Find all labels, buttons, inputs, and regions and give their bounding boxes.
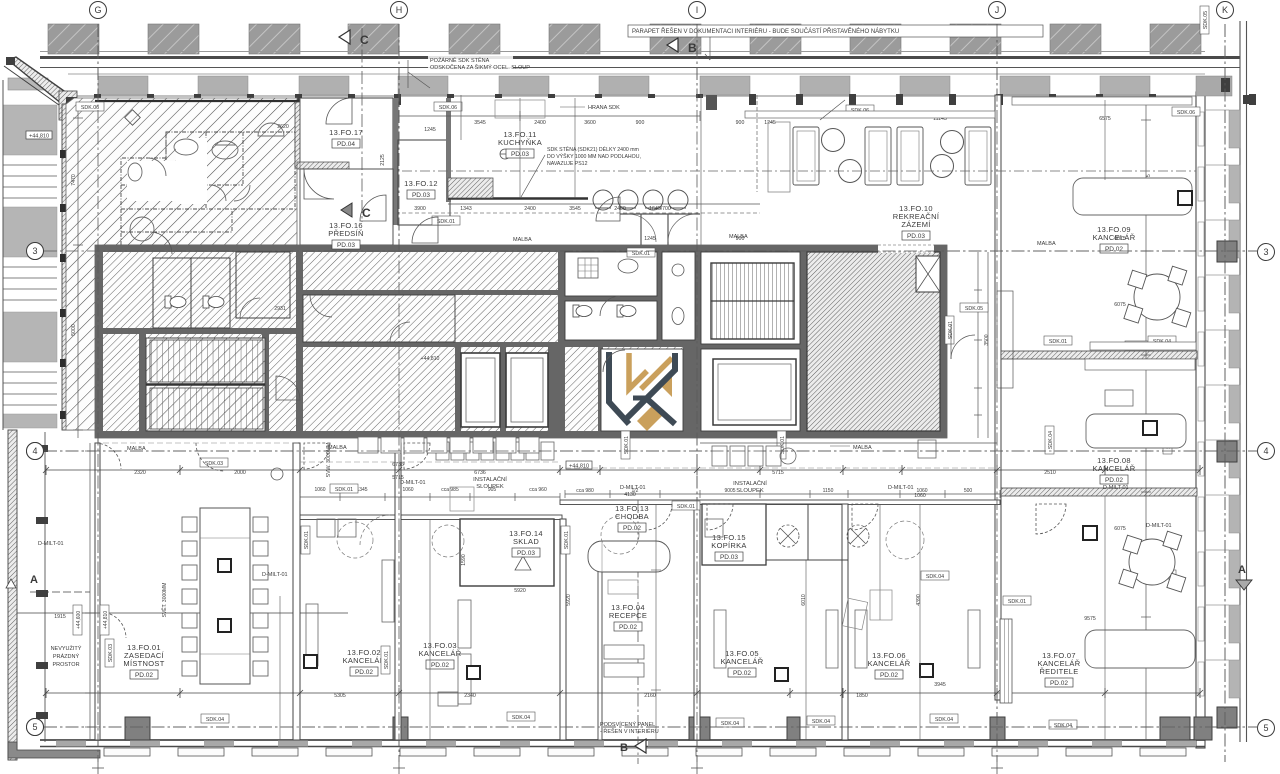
svg-text:CHODBA: CHODBA: [615, 512, 649, 521]
svg-text:PD.02: PD.02: [1105, 246, 1123, 253]
svg-text:MALBA: MALBA: [513, 237, 532, 243]
svg-text:HRANA SDK: HRANA SDK: [588, 105, 620, 111]
svg-text:PD.03: PD.03: [412, 192, 430, 199]
svg-text:PD.03: PD.03: [907, 233, 925, 240]
svg-text:+44,810: +44,810: [103, 611, 109, 629]
svg-text:KANCELÁŘ: KANCELÁŘ: [868, 659, 911, 668]
svg-text:1343: 1343: [460, 206, 472, 212]
svg-text:SVĚT. 3000MM: SVĚT. 3000MM: [160, 583, 168, 618]
svg-text:SDK.04: SDK.04: [512, 715, 530, 721]
svg-text:13.FO.12: 13.FO.12: [404, 179, 438, 188]
svg-text:6736: 6736: [474, 470, 486, 476]
svg-text:ŘEDITELE: ŘEDITELE: [1039, 667, 1078, 676]
svg-text:9575: 9575: [1084, 616, 1096, 622]
svg-text:PD.02: PD.02: [1050, 680, 1068, 687]
svg-text:1850: 1850: [856, 693, 868, 699]
svg-text:cca 960: cca 960: [529, 487, 547, 493]
svg-text:NEVYUŽITÝ: NEVYUŽITÝ: [51, 644, 82, 652]
svg-text:1915: 1915: [54, 614, 66, 620]
svg-text:PD.02: PD.02: [1105, 477, 1123, 484]
svg-text:ZÁZEMÍ: ZÁZEMÍ: [901, 220, 931, 229]
svg-text:5715: 5715: [392, 475, 404, 481]
svg-text:PŘEDSÍŇ: PŘEDSÍŇ: [328, 229, 363, 238]
svg-text:A: A: [30, 574, 38, 586]
svg-text:SDK.04: SDK.04: [721, 721, 739, 727]
svg-text:1060: 1060: [314, 487, 325, 493]
svg-text:4130: 4130: [624, 492, 636, 498]
svg-text:PROSTOR: PROSTOR: [52, 662, 79, 668]
svg-text:900: 900: [736, 120, 745, 126]
svg-text:K: K: [1222, 5, 1228, 15]
svg-text:2320: 2320: [134, 470, 146, 476]
svg-text:I: I: [696, 5, 699, 15]
svg-text:INSTALAČNÍ: INSTALAČNÍ: [733, 480, 767, 487]
svg-text:SDK.01: SDK.01: [335, 487, 353, 493]
svg-text:MALBA: MALBA: [1037, 241, 1056, 247]
svg-text:5920: 5920: [566, 594, 572, 606]
svg-text:KANCELÁŘ: KANCELÁŘ: [1093, 464, 1136, 473]
svg-text:PD.02: PD.02: [733, 670, 751, 677]
svg-text:SDK.06: SDK.06: [81, 105, 99, 111]
svg-text:PD.02: PD.02: [619, 624, 637, 631]
svg-text:D-MILT-01: D-MILT-01: [888, 485, 914, 491]
svg-text:KOPÍRKA: KOPÍRKA: [711, 541, 746, 550]
svg-text:1245: 1245: [644, 236, 656, 242]
svg-text:MÍSTNOST: MÍSTNOST: [123, 659, 164, 668]
svg-text:SDK.01: SDK.01: [304, 531, 310, 549]
svg-text:SDK.01: SDK.01: [1049, 339, 1067, 345]
svg-text:PD.02: PD.02: [135, 672, 153, 679]
svg-text:6075: 6075: [1114, 236, 1126, 242]
svg-text:PD.02: PD.02: [880, 672, 898, 679]
svg-text:RECEPCE: RECEPCE: [609, 611, 647, 620]
svg-text:PD.03: PD.03: [517, 550, 535, 557]
svg-text:MALBA: MALBA: [853, 445, 872, 451]
svg-text:KANCELÁŘ: KANCELÁŘ: [721, 657, 764, 666]
svg-text:5305: 5305: [334, 693, 346, 699]
svg-text:SDK.01: SDK.01: [677, 504, 695, 510]
svg-text:1590: 1590: [461, 554, 467, 566]
svg-text:B: B: [620, 742, 628, 754]
svg-text:PD.03: PD.03: [720, 554, 738, 561]
svg-text:7470: 7470: [71, 174, 77, 186]
svg-text:D-MILT-01: D-MILT-01: [38, 541, 64, 547]
svg-text:3: 3: [1263, 247, 1268, 257]
svg-text:+44,810: +44,810: [29, 134, 49, 140]
svg-text:+44,810: +44,810: [421, 356, 440, 362]
svg-text:KANCELÁŘ: KANCELÁŘ: [343, 656, 386, 665]
svg-text:- ŘEŠEN V INTERIÉRU: - ŘEŠEN V INTERIÉRU: [600, 727, 659, 735]
svg-text:900: 900: [636, 120, 645, 126]
svg-text:6736: 6736: [392, 462, 404, 468]
svg-text:cca 980: cca 980: [576, 488, 594, 494]
svg-text:H: H: [396, 5, 403, 15]
svg-text:2340: 2340: [464, 693, 476, 699]
svg-text:SDK.04: SDK.04: [926, 574, 944, 580]
svg-text:5: 5: [1263, 723, 1268, 733]
svg-text:6075: 6075: [1114, 302, 1126, 308]
svg-text:1060: 1060: [402, 487, 413, 493]
svg-text:SDK.01: SDK.01: [437, 219, 455, 225]
svg-text:3: 3: [32, 246, 37, 256]
svg-text:SDK.06: SDK.06: [1177, 110, 1195, 116]
svg-text:PD.02: PD.02: [431, 662, 449, 669]
svg-text:SVW. 3000MM: SVW. 3000MM: [326, 443, 332, 478]
svg-text:2620: 2620: [277, 124, 289, 130]
svg-text:PARAPET ŘEŠEN V DOKUMENTACI IN: PARAPET ŘEŠEN V DOKUMENTACI INTERIÉRU - …: [632, 27, 899, 35]
svg-text:PD.02: PD.02: [355, 669, 373, 676]
svg-text:POŽÁRNĚ SDK STĚNA: POŽÁRNĚ SDK STĚNA: [430, 56, 490, 64]
svg-text:3600: 3600: [584, 120, 596, 126]
svg-text:1150: 1150: [823, 488, 834, 494]
svg-text:PRÁZDNÝ: PRÁZDNÝ: [53, 653, 80, 660]
svg-text:6075: 6075: [1114, 526, 1126, 532]
svg-text:G: G: [94, 5, 101, 15]
svg-text:3545: 3545: [569, 206, 581, 212]
svg-text:5715: 5715: [772, 470, 784, 476]
svg-text:SDK.05: SDK.05: [1203, 11, 1209, 29]
svg-text:3945: 3945: [934, 682, 946, 688]
svg-text:D-MILT-01: D-MILT-01: [1103, 485, 1129, 491]
svg-text:13.FO.17: 13.FO.17: [329, 128, 363, 137]
svg-text:9005: 9005: [724, 488, 735, 494]
svg-text:SLOUPEK: SLOUPEK: [736, 488, 764, 494]
svg-text:500: 500: [964, 488, 973, 494]
svg-text:SDK STĚNA (SDK21) DÉLKY 2400 m: SDK STĚNA (SDK21) DÉLKY 2400 mm: [547, 145, 639, 153]
svg-text:2931: 2931: [274, 306, 286, 312]
svg-text:SDK.01: SDK.01: [564, 531, 570, 549]
svg-text:2510: 2510: [1044, 470, 1056, 476]
svg-text:DO VÝŠKY 1000 MM NAD PODLAHOU,: DO VÝŠKY 1000 MM NAD PODLAHOU,: [547, 153, 641, 160]
svg-text:900: 900: [736, 236, 745, 242]
svg-text:2400: 2400: [524, 206, 536, 212]
svg-text:PD.03: PD.03: [337, 242, 355, 249]
svg-text:KANCELÁŘ: KANCELÁŘ: [419, 649, 462, 658]
svg-text:ODSKOČENA ZA ŠIKMÝ OCEL. SLOUP: ODSKOČENA ZA ŠIKMÝ OCEL. SLOUP: [430, 64, 530, 71]
svg-text:B: B: [688, 41, 697, 55]
svg-text:SDK.04: SDK.04: [1048, 431, 1054, 449]
svg-text:SDK.04: SDK.04: [206, 717, 224, 723]
svg-text:2000: 2000: [234, 470, 246, 476]
svg-text:4: 4: [1263, 446, 1268, 456]
svg-text:SDK.04: SDK.04: [812, 719, 830, 725]
svg-text:5: 5: [32, 722, 37, 732]
svg-text:3500: 3500: [984, 334, 990, 345]
svg-text:INSTALAČNÍ: INSTALAČNÍ: [473, 476, 507, 483]
svg-text:1245: 1245: [424, 127, 436, 133]
svg-text:SKLAD: SKLAD: [513, 537, 539, 546]
svg-text:2160: 2160: [644, 693, 656, 699]
svg-text:D-MILT-01: D-MILT-01: [620, 485, 646, 491]
svg-text:3545: 3545: [474, 120, 486, 126]
svg-text:1245: 1245: [764, 120, 776, 126]
svg-text:+44,810: +44,810: [569, 464, 589, 470]
svg-text:SDK.01: SDK.01: [632, 251, 650, 257]
svg-text:1060: 1060: [914, 493, 926, 499]
svg-text:SDK.04: SDK.04: [935, 717, 953, 723]
svg-text:SLOUPEK: SLOUPEK: [476, 484, 504, 490]
svg-text:A: A: [1238, 564, 1246, 576]
svg-text:J: J: [995, 5, 1000, 15]
svg-text:SDK.03: SDK.03: [108, 644, 114, 662]
svg-text:4: 4: [32, 446, 37, 456]
svg-text:3900: 3900: [414, 206, 426, 212]
svg-text:SDK.06: SDK.06: [439, 105, 457, 111]
svg-text:2400: 2400: [534, 120, 546, 126]
svg-text:+44,600: +44,600: [76, 611, 82, 629]
svg-text:SDK.01: SDK.01: [384, 651, 390, 669]
svg-text:SDK.01: SDK.01: [1008, 599, 1026, 605]
svg-text:4390: 4390: [916, 594, 922, 606]
svg-text:SDK.04: SDK.04: [1054, 723, 1072, 729]
svg-text:NAVAZUJE PS12: NAVAZUJE PS12: [547, 161, 588, 167]
svg-text:C: C: [360, 33, 369, 47]
svg-text:D-MILT-01: D-MILT-01: [1146, 523, 1172, 529]
svg-text:D-MILT-01: D-MILT-01: [262, 572, 288, 578]
svg-text:1645/700: 1645/700: [649, 206, 671, 212]
svg-text:5000: 5000: [71, 324, 77, 336]
svg-text:5920: 5920: [514, 588, 526, 594]
svg-text:PD.04: PD.04: [337, 141, 355, 148]
svg-text:2125: 2125: [380, 154, 386, 166]
svg-text:SDK.05: SDK.05: [965, 306, 983, 312]
svg-text:D-MILT-01: D-MILT-01: [400, 480, 426, 486]
